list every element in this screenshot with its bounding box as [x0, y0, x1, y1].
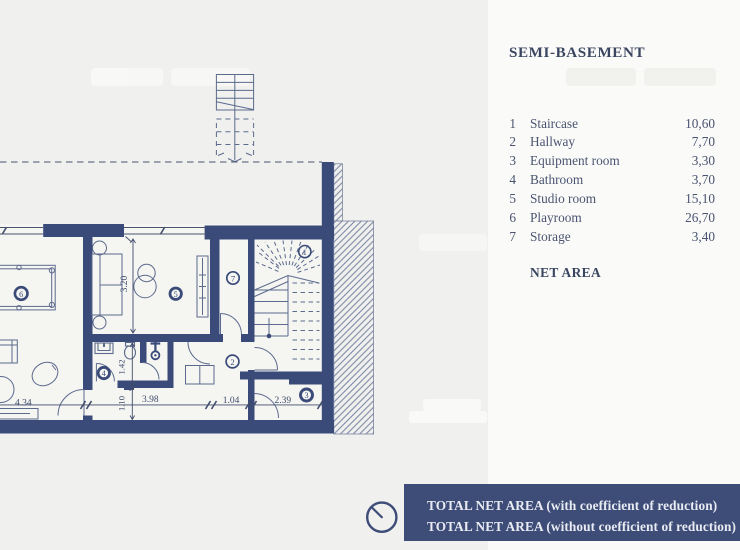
svg-text:3: 3: [304, 391, 308, 400]
svg-text:1.04: 1.04: [223, 396, 240, 406]
svg-text:4: 4: [102, 369, 106, 378]
svg-text:3.98: 3.98: [142, 395, 159, 405]
svg-text:2: 2: [230, 357, 234, 367]
svg-text:7: 7: [231, 274, 236, 284]
svg-text:2.39: 2.39: [274, 396, 291, 406]
svg-text:1.10: 1.10: [117, 396, 127, 411]
svg-text:1: 1: [303, 247, 307, 257]
svg-text:6: 6: [19, 290, 23, 299]
svg-text:5: 5: [174, 290, 178, 299]
svg-text:1.42: 1.42: [117, 359, 127, 374]
svg-text:4.34: 4.34: [15, 399, 32, 409]
svg-text:3.20: 3.20: [120, 275, 130, 292]
